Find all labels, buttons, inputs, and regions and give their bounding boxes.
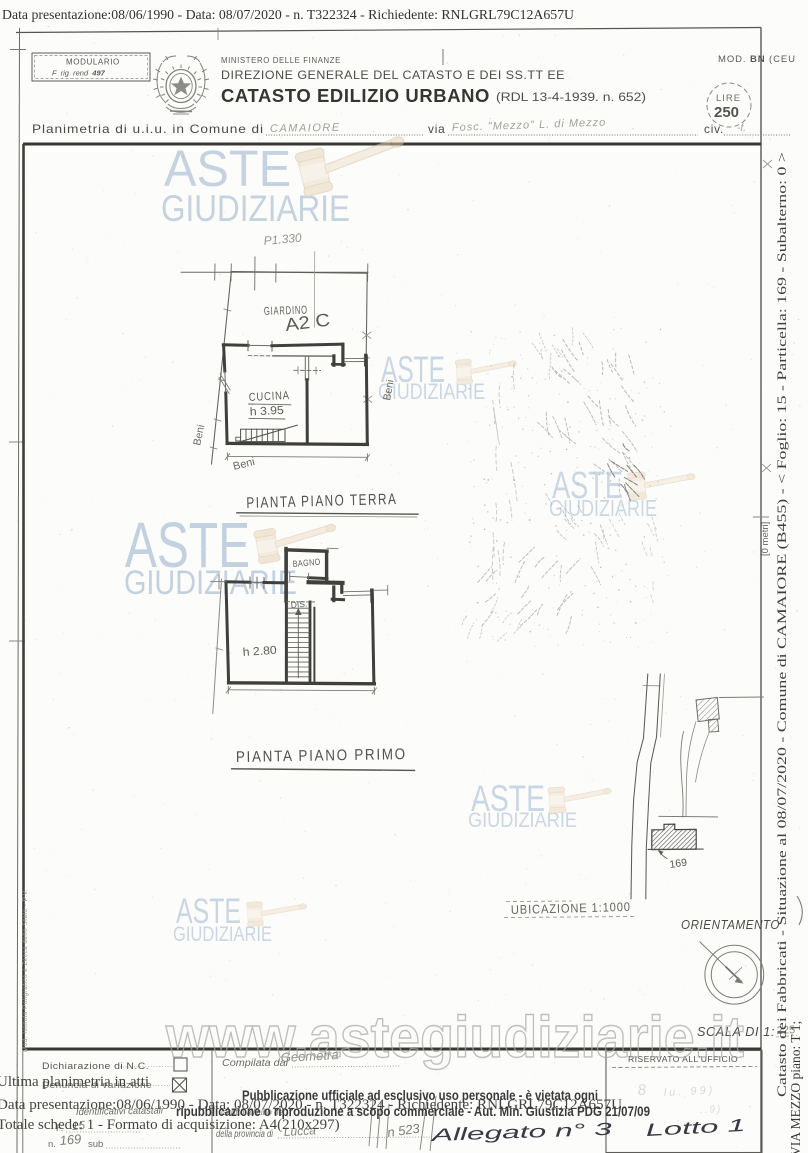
svg-text:via: via bbox=[428, 122, 445, 136]
svg-text:h 2.80: h 2.80 bbox=[242, 645, 277, 659]
svg-text:Mod. Istituto Poligrafico e Ze: Mod. Istituto Poligrafico e Zecca dello … bbox=[22, 889, 29, 1052]
svg-text:169: 169 bbox=[669, 857, 688, 871]
svg-text:Catasto dei Fabbricati - Situa: Catasto dei Fabbricati - Situazione al 0… bbox=[774, 152, 789, 1097]
svg-text:PIANTA PIANO PRIMO: PIANTA PIANO PRIMO bbox=[236, 746, 407, 766]
svg-text:www.astegiudiziarie.it: www.astegiudiziarie.it bbox=[165, 1005, 744, 1070]
svg-text:LIRE: LIRE bbox=[716, 93, 741, 104]
svg-text:169: 169 bbox=[59, 1131, 82, 1148]
svg-text:..9): ..9) bbox=[700, 1104, 723, 1116]
svg-text:GIUDIZIARIE: GIUDIZIARIE bbox=[161, 188, 350, 229]
svg-text:Dichiarazione di N.C.: Dichiarazione di N.C. bbox=[42, 1061, 149, 1071]
svg-text:Totale schede: 1 - Formato di: Totale schede: 1 - Formato di acquisizio… bbox=[0, 1117, 340, 1133]
svg-text:MINISTERO DELLE FINANZE: MINISTERO DELLE FINANZE bbox=[221, 55, 341, 65]
svg-text:Planimetria di u.i.u. in Comun: Planimetria di u.i.u. in Comune di bbox=[32, 122, 264, 136]
svg-text:MODULARIO: MODULARIO bbox=[66, 58, 120, 67]
svg-text:VIA MEZZO piano: T 1;: VIA MEZZO piano: T 1; bbox=[788, 1021, 803, 1153]
svg-text:Pubblicazione ufficiale ad esc: Pubblicazione ufficiale ad esclusivo uso… bbox=[242, 1088, 598, 1103]
svg-text:ripubblicazione o riproduzione: ripubblicazione o riproduzione a scopo c… bbox=[176, 1104, 650, 1119]
svg-text:F rig rend 497: F rig rend 497 bbox=[52, 69, 106, 78]
svg-text:[0 metri]: [0 metri] bbox=[760, 522, 771, 556]
svg-text:h 3.95: h 3.95 bbox=[250, 405, 285, 419]
svg-text:Data presentazione:08/06/1990: Data presentazione:08/06/1990 - Data: 08… bbox=[2, 8, 574, 23]
svg-text:MOD. BN (CEU: MOD. BN (CEU bbox=[718, 54, 796, 65]
svg-text:-f.: -f. bbox=[737, 123, 746, 134]
svg-text:civ.: civ. bbox=[704, 122, 724, 136]
svg-text:sub: sub bbox=[88, 1139, 103, 1150]
svg-text:ORIENTAMENTO: ORIENTAMENTO bbox=[681, 918, 780, 932]
svg-text:Ultima planimetria in atti: Ultima planimetria in atti bbox=[0, 1074, 149, 1090]
svg-text:n.: n. bbox=[48, 1139, 56, 1150]
svg-text:CATASTO EDILIZIO URBANO: CATASTO EDILIZIO URBANO bbox=[221, 85, 490, 106]
svg-text:250: 250 bbox=[714, 104, 739, 121]
svg-text:DIREZIONE GENERALE DEL CATASTO: DIREZIONE GENERALE DEL CATASTO E DEI SS.… bbox=[221, 68, 565, 82]
svg-text:CAMAIORE: CAMAIORE bbox=[270, 122, 341, 135]
svg-text:CUCINA: CUCINA bbox=[249, 390, 291, 404]
svg-text:(RDL 13-4-1939. n. 652): (RDL 13-4-1939. n. 652) bbox=[496, 92, 646, 104]
